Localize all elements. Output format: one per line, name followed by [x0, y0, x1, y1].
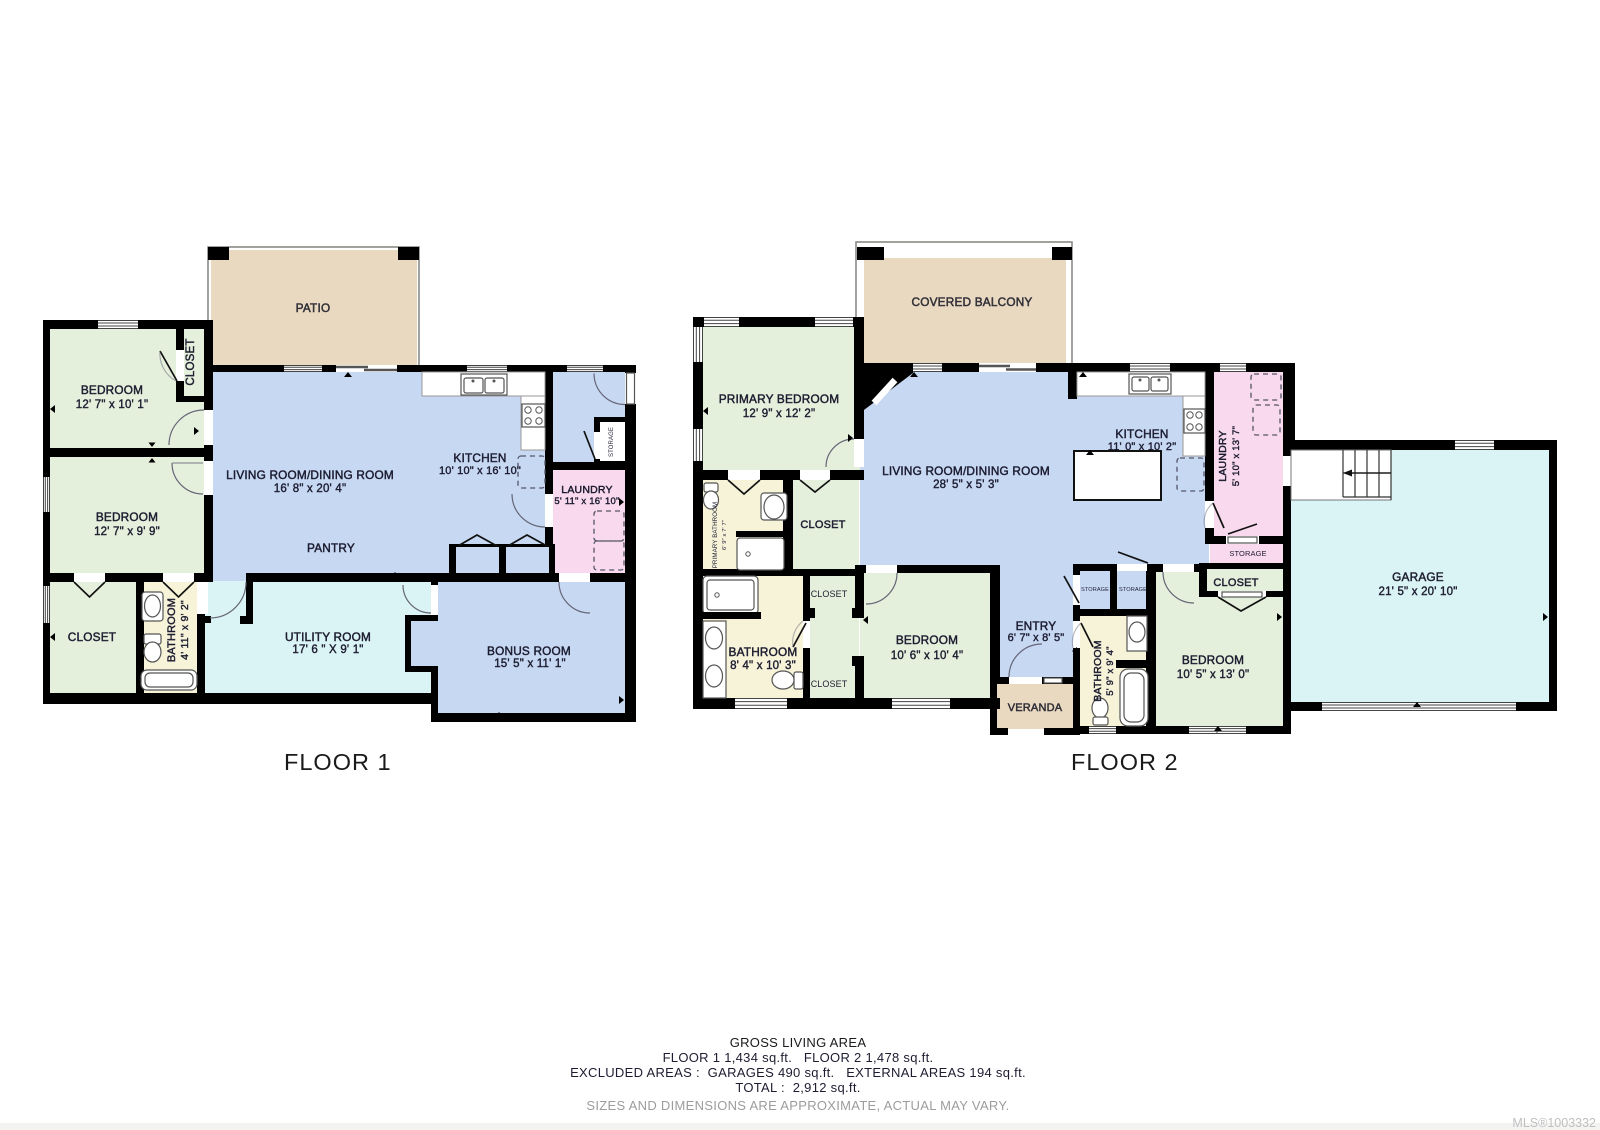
svg-text:16' 8" x 20' 4": 16' 8" x 20' 4" — [274, 483, 346, 495]
svg-text:KITCHEN: KITCHEN — [1115, 427, 1168, 441]
svg-text:4' 11" x 9' 2": 4' 11" x 9' 2" — [179, 600, 191, 660]
svg-text:FLOOR 2: FLOOR 2 — [1071, 749, 1179, 775]
svg-text:COVERED BALCONY: COVERED BALCONY — [912, 295, 1033, 309]
svg-text:5' 9" x 9' 4": 5' 9" x 9' 4" — [1105, 646, 1116, 695]
svg-text:PRIMARY BEDROOM: PRIMARY BEDROOM — [719, 392, 840, 406]
svg-text:CLOSET: CLOSET — [800, 519, 845, 531]
svg-text:PANTRY: PANTRY — [307, 541, 355, 555]
svg-text:PATIO: PATIO — [296, 301, 331, 315]
svg-text:BEDROOM: BEDROOM — [81, 383, 143, 397]
svg-text:CLOSET: CLOSET — [185, 338, 197, 385]
svg-text:VERANDA: VERANDA — [1008, 702, 1063, 714]
svg-text:STORAGE: STORAGE — [1119, 587, 1147, 593]
svg-text:FLOOR 1 1,434 sq.ft. FLOOR 2: FLOOR 1 1,434 sq.ft. FLOOR 2 1,478 sq.ft… — [663, 1050, 934, 1065]
svg-text:10' 6" x 10' 4": 10' 6" x 10' 4" — [891, 650, 963, 662]
svg-text:KITCHEN: KITCHEN — [453, 451, 506, 465]
svg-text:STORAGE: STORAGE — [1081, 587, 1109, 593]
svg-text:SIZES AND DIMENSIONS ARE APPRO: SIZES AND DIMENSIONS ARE APPROXIMATE, AC… — [586, 1098, 1009, 1113]
svg-text:CLOSET: CLOSET — [68, 630, 116, 644]
svg-text:BONUS ROOM: BONUS ROOM — [487, 644, 571, 658]
svg-text:PRIMARY BATHROOM: PRIMARY BATHROOM — [712, 502, 719, 569]
svg-text:LIVING ROOM/DINING ROOM: LIVING ROOM/DINING ROOM — [882, 464, 1050, 478]
svg-text:11' 0" x 10' 2": 11' 0" x 10' 2" — [1108, 441, 1177, 453]
svg-text:ENTRY: ENTRY — [1016, 619, 1057, 633]
svg-text:5' 11" x 16' 10": 5' 11" x 16' 10" — [554, 496, 619, 507]
svg-text:CLOSET: CLOSET — [1213, 577, 1258, 589]
svg-text:6' 7" x 8' 5": 6' 7" x 8' 5" — [1008, 632, 1065, 644]
svg-text:BEDROOM: BEDROOM — [96, 510, 158, 524]
svg-text:8' 4" x 10' 3": 8' 4" x 10' 3" — [730, 660, 796, 672]
svg-text:STORAGE: STORAGE — [1229, 549, 1266, 558]
svg-text:STORAGE: STORAGE — [609, 427, 615, 457]
svg-text:UTILITY ROOM: UTILITY ROOM — [285, 630, 371, 644]
svg-text:10' 5" x 13' 0": 10' 5" x 13' 0" — [1177, 669, 1249, 681]
svg-text:EXCLUDED AREAS : GARAGES 490: EXCLUDED AREAS : GARAGES 490 sq.ft. EXTE… — [570, 1065, 1026, 1080]
svg-text:BATHROOM: BATHROOM — [166, 598, 178, 662]
svg-text:GARAGE: GARAGE — [1392, 570, 1444, 584]
svg-text:LAUNDRY: LAUNDRY — [1217, 430, 1229, 481]
svg-text:15' 5" x 11' 1": 15' 5" x 11' 1" — [494, 658, 566, 670]
svg-text:17' 6 " X 9' 1": 17' 6 " X 9' 1" — [292, 644, 363, 656]
svg-text:12' 9" x 12' 2": 12' 9" x 12' 2" — [743, 408, 815, 420]
svg-text:LAUNDRY: LAUNDRY — [561, 484, 612, 496]
svg-text:LIVING ROOM/DINING ROOM: LIVING ROOM/DINING ROOM — [226, 468, 394, 482]
svg-text:BEDROOM: BEDROOM — [896, 633, 958, 647]
svg-text:TOTAL : 2,912 sq.ft.: TOTAL : 2,912 sq.ft. — [735, 1080, 860, 1095]
svg-text:BATHROOM: BATHROOM — [1092, 640, 1104, 702]
svg-text:MLS®1003332: MLS®1003332 — [1512, 1116, 1596, 1130]
svg-text:5' 10" x 13' 7": 5' 10" x 13' 7" — [1231, 426, 1242, 486]
svg-text:12' 7" x 10' 1": 12' 7" x 10' 1" — [76, 399, 148, 411]
svg-text:CLOSET: CLOSET — [811, 589, 848, 599]
svg-text:BATHROOM: BATHROOM — [729, 645, 798, 659]
svg-text:GROSS LIVING AREA: GROSS LIVING AREA — [730, 1035, 867, 1050]
svg-text:12' 7" x 9' 9": 12' 7" x 9' 9" — [94, 526, 160, 538]
svg-text:FLOOR 1: FLOOR 1 — [284, 749, 392, 775]
svg-text:BEDROOM: BEDROOM — [1182, 653, 1244, 667]
svg-text:CLOSET: CLOSET — [811, 679, 848, 689]
svg-text:21' 5" x 20' 10": 21' 5" x 20' 10" — [1378, 586, 1457, 598]
svg-text:6' 9" x 7' 7": 6' 9" x 7' 7" — [722, 520, 728, 550]
svg-text:10' 10" x 16' 10": 10' 10" x 16' 10" — [439, 465, 521, 477]
svg-text:28' 5" x 5' 3": 28' 5" x 5' 3" — [933, 479, 999, 491]
